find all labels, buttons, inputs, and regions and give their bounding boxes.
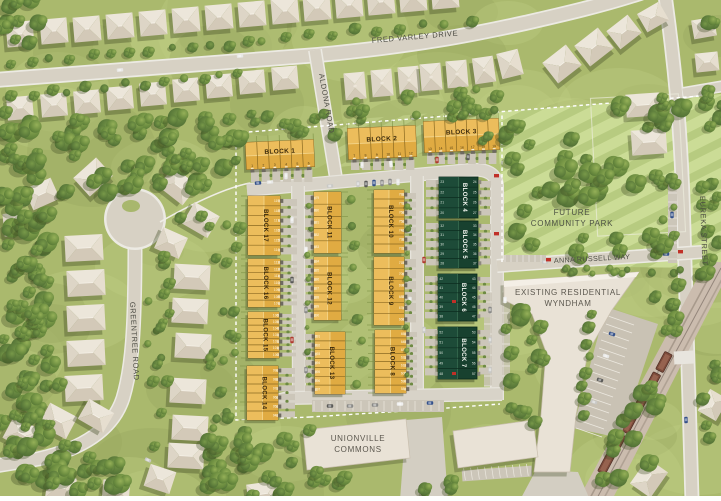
svg-text:6: 6 <box>308 161 310 165</box>
svg-text:13: 13 <box>428 147 432 151</box>
svg-text:64: 64 <box>401 340 405 344</box>
svg-text:14: 14 <box>439 146 443 150</box>
svg-text:89: 89 <box>316 305 320 309</box>
svg-text:101: 101 <box>273 346 279 350</box>
svg-text:113: 113 <box>274 261 279 265</box>
svg-text:119: 119 <box>274 199 279 203</box>
svg-text:102: 102 <box>273 340 279 344</box>
svg-text:5: 5 <box>296 162 298 166</box>
svg-text:85: 85 <box>316 269 320 273</box>
svg-text:9: 9 <box>376 153 378 157</box>
svg-text:26: 26 <box>473 201 477 205</box>
svg-text:66: 66 <box>399 317 403 321</box>
svg-text:23: 23 <box>440 180 444 184</box>
svg-text:78: 78 <box>399 193 403 197</box>
svg-text:53: 53 <box>472 330 476 334</box>
svg-text:96: 96 <box>317 379 321 383</box>
svg-text:40: 40 <box>439 296 443 300</box>
svg-text:15: 15 <box>449 146 453 150</box>
svg-text:34: 34 <box>473 233 477 237</box>
svg-text:BLOCK 9: BLOCK 9 <box>387 276 393 305</box>
svg-text:39: 39 <box>439 305 443 309</box>
svg-text:12: 12 <box>409 151 413 155</box>
svg-text:BLOCK 17: BLOCK 17 <box>262 209 268 242</box>
svg-text:65: 65 <box>401 332 405 336</box>
svg-text:41: 41 <box>439 286 443 290</box>
svg-text:BLOCK 7: BLOCK 7 <box>460 338 466 367</box>
svg-text:3: 3 <box>274 163 276 167</box>
svg-text:55: 55 <box>472 351 476 355</box>
svg-text:82: 82 <box>316 233 320 237</box>
svg-text:107: 107 <box>274 302 280 306</box>
svg-text:51: 51 <box>439 341 443 345</box>
svg-text:103: 103 <box>273 333 279 337</box>
svg-text:46: 46 <box>472 305 476 309</box>
svg-text:UNIONVILLE: UNIONVILLE <box>331 434 386 443</box>
svg-text:BLOCK 11: BLOCK 11 <box>326 206 332 239</box>
svg-text:67: 67 <box>399 306 403 310</box>
svg-text:105: 105 <box>273 320 279 324</box>
svg-text:86: 86 <box>316 278 320 282</box>
svg-text:8: 8 <box>365 153 367 157</box>
svg-text:WYNDHAM: WYNDHAM <box>544 299 591 308</box>
svg-text:11: 11 <box>398 152 402 156</box>
svg-text:25: 25 <box>473 191 477 195</box>
svg-text:95: 95 <box>317 370 321 374</box>
svg-text:31: 31 <box>440 233 444 237</box>
svg-text:28: 28 <box>440 261 444 265</box>
svg-text:114: 114 <box>274 248 279 252</box>
svg-text:32: 32 <box>440 224 444 228</box>
svg-text:79: 79 <box>316 196 320 200</box>
svg-text:54: 54 <box>472 341 476 345</box>
svg-text:35: 35 <box>473 243 477 247</box>
svg-text:81: 81 <box>316 221 320 225</box>
svg-text:73: 73 <box>399 238 403 242</box>
svg-text:70: 70 <box>399 272 403 276</box>
svg-text:BLOCK 10: BLOCK 10 <box>387 205 393 238</box>
svg-text:91: 91 <box>317 335 321 339</box>
svg-text:108: 108 <box>274 295 280 299</box>
svg-text:BLOCK 2: BLOCK 2 <box>366 135 397 143</box>
svg-text:112: 112 <box>274 267 279 271</box>
svg-text:96: 96 <box>273 396 277 400</box>
svg-text:24: 24 <box>473 180 477 184</box>
svg-text:106: 106 <box>273 313 279 317</box>
svg-text:68: 68 <box>399 295 403 299</box>
svg-text:95: 95 <box>273 405 277 409</box>
svg-text:42: 42 <box>439 277 443 281</box>
svg-text:83: 83 <box>316 245 320 249</box>
svg-text:BLOCK 3: BLOCK 3 <box>446 128 477 136</box>
svg-text:72: 72 <box>399 247 403 251</box>
svg-text:61: 61 <box>401 364 405 368</box>
svg-text:60: 60 <box>401 371 405 375</box>
svg-text:74: 74 <box>399 229 403 233</box>
svg-text:50: 50 <box>439 351 443 355</box>
svg-text:43: 43 <box>472 277 476 281</box>
svg-text:62: 62 <box>401 356 405 360</box>
svg-text:21: 21 <box>440 201 444 205</box>
svg-text:90: 90 <box>316 314 320 318</box>
svg-text:45: 45 <box>472 296 476 300</box>
svg-text:BLOCK 6: BLOCK 6 <box>460 283 466 312</box>
svg-text:88: 88 <box>316 296 320 300</box>
svg-text:47: 47 <box>472 314 476 318</box>
svg-text:77: 77 <box>399 202 403 206</box>
svg-text:7: 7 <box>353 154 355 158</box>
svg-text:111: 111 <box>274 274 279 278</box>
svg-text:19: 19 <box>492 144 496 148</box>
svg-text:58: 58 <box>401 387 405 391</box>
svg-text:98: 98 <box>273 378 277 382</box>
svg-text:56: 56 <box>472 362 476 366</box>
svg-text:29: 29 <box>440 252 444 256</box>
svg-text:10: 10 <box>386 152 390 156</box>
svg-text:30: 30 <box>440 243 444 247</box>
svg-text:EXISTING RESIDENTIAL: EXISTING RESIDENTIAL <box>515 288 621 297</box>
svg-text:80: 80 <box>316 208 320 212</box>
svg-text:57: 57 <box>472 372 476 376</box>
svg-text:38: 38 <box>439 314 443 318</box>
svg-text:49: 49 <box>439 362 443 366</box>
svg-text:59: 59 <box>401 379 405 383</box>
svg-text:BLOCK 13: BLOCK 13 <box>328 347 334 380</box>
svg-text:109: 109 <box>274 288 280 292</box>
svg-text:92: 92 <box>317 343 321 347</box>
svg-text:20: 20 <box>440 211 444 215</box>
svg-text:69: 69 <box>399 283 403 287</box>
svg-text:94: 94 <box>317 361 321 365</box>
svg-text:44: 44 <box>472 286 476 290</box>
svg-text:BLOCK 16: BLOCK 16 <box>262 267 268 300</box>
svg-text:97: 97 <box>273 387 277 391</box>
svg-text:37: 37 <box>473 261 477 265</box>
svg-text:104: 104 <box>273 327 279 331</box>
svg-text:93: 93 <box>317 352 321 356</box>
svg-text:116: 116 <box>274 229 279 233</box>
svg-text:BLOCK 5: BLOCK 5 <box>461 230 467 259</box>
svg-text:94: 94 <box>273 414 277 418</box>
svg-text:84: 84 <box>316 260 320 264</box>
svg-text:115: 115 <box>274 238 279 242</box>
svg-text:117: 117 <box>274 219 279 223</box>
svg-text:FUTURE: FUTURE <box>554 208 591 217</box>
svg-text:1: 1 <box>251 164 253 168</box>
svg-text:BLOCK 1: BLOCK 1 <box>264 148 295 156</box>
svg-text:27: 27 <box>473 211 477 215</box>
svg-text:87: 87 <box>316 287 320 291</box>
svg-text:2: 2 <box>262 163 264 167</box>
svg-text:97: 97 <box>317 388 321 392</box>
svg-text:100: 100 <box>273 353 279 357</box>
svg-text:99: 99 <box>273 369 277 373</box>
svg-text:BLOCK 14: BLOCK 14 <box>261 377 267 410</box>
svg-text:48: 48 <box>439 372 443 376</box>
svg-text:16: 16 <box>460 146 464 150</box>
svg-text:36: 36 <box>473 252 477 256</box>
svg-text:COMMONS: COMMONS <box>334 445 382 454</box>
svg-text:110: 110 <box>274 281 279 285</box>
svg-text:BLOCK 15: BLOCK 15 <box>262 319 268 352</box>
svg-text:22: 22 <box>440 191 444 195</box>
svg-text:75: 75 <box>399 220 403 224</box>
svg-text:BLOCK 8: BLOCK 8 <box>389 347 395 376</box>
svg-text:71: 71 <box>399 261 403 265</box>
svg-text:33: 33 <box>473 224 477 228</box>
svg-text:17: 17 <box>471 145 475 149</box>
svg-text:BLOCK 12: BLOCK 12 <box>326 272 332 305</box>
svg-text:COMMUNITY PARK: COMMUNITY PARK <box>531 219 613 228</box>
svg-text:76: 76 <box>399 211 403 215</box>
svg-text:118: 118 <box>274 209 279 213</box>
svg-text:52: 52 <box>439 330 443 334</box>
svg-text:BLOCK 4: BLOCK 4 <box>461 183 467 212</box>
svg-text:4: 4 <box>285 162 287 166</box>
